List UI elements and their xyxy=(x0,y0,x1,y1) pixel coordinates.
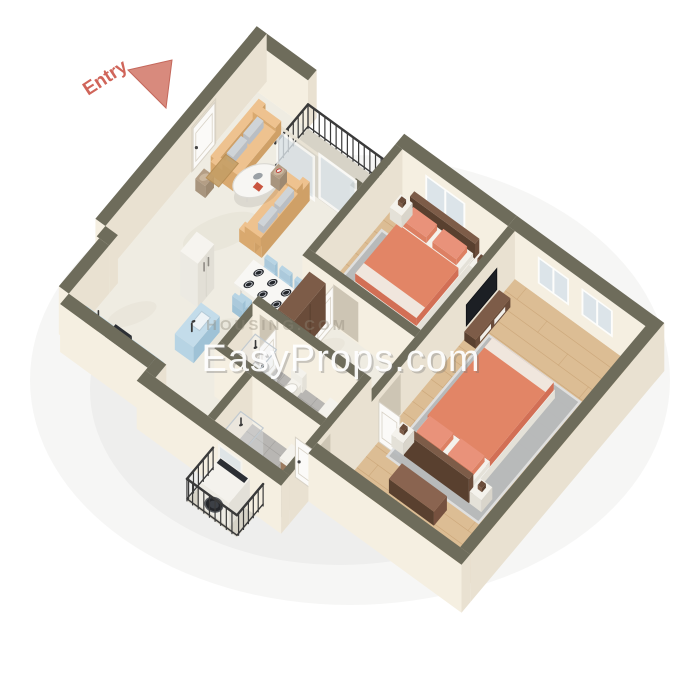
secondary-watermark-text: HOUSING.COM xyxy=(206,317,348,334)
floor-plan-image: HOUSING.COM EasyProps.com EasyProps.com … xyxy=(0,0,681,681)
entry-arrow-icon xyxy=(128,60,172,108)
entry-callout: Entry xyxy=(79,56,172,108)
primary-watermark: EasyProps.com EasyProps.com xyxy=(201,338,482,382)
floor-plan-scene xyxy=(30,26,670,613)
secondary-watermark: HOUSING.COM xyxy=(206,317,348,334)
primary-watermark-text: EasyProps.com xyxy=(201,338,480,380)
floor-plan-canvas: HOUSING.COM EasyProps.com EasyProps.com … xyxy=(0,0,681,681)
entry-label: Entry xyxy=(79,56,132,100)
